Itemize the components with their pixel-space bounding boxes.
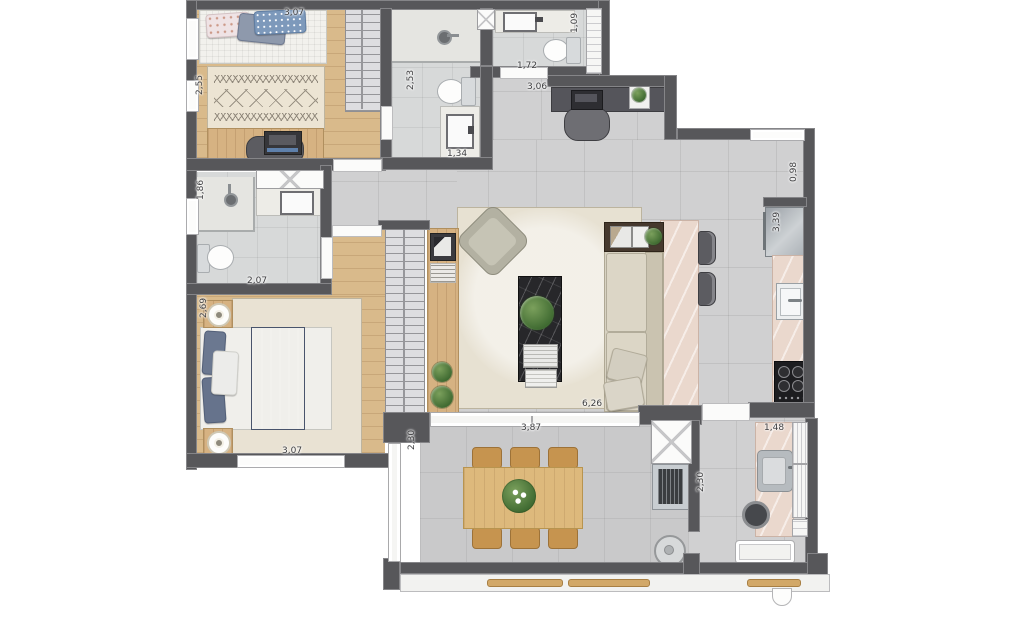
faucet-bathroom-1 (468, 126, 474, 134)
window-bathroom-2 (186, 198, 199, 235)
laptop-1-accent (267, 148, 298, 152)
dimension-label: 2,53 (406, 70, 416, 90)
cabinet-bathroom-2 (256, 170, 324, 189)
floor-plan: 3,072,552,531,341,091,723,060,983,391,86… (0, 0, 1024, 640)
shower-arm-1 (447, 34, 459, 37)
dimension-label: 1,34 (447, 149, 467, 159)
glass-wall-terrace-left (388, 443, 401, 562)
window-kitchen-top (750, 129, 805, 141)
dimension-label: 2,55 (195, 75, 205, 95)
dining-chair-3 (548, 447, 578, 469)
dimension-label: 0,98 (789, 162, 799, 182)
laundry-appliance (735, 540, 795, 564)
laptop-1-screen (269, 135, 296, 145)
coffee-table-plant (520, 296, 554, 330)
dining-chair-2 (510, 447, 540, 469)
wall-bathroom-1-right (480, 66, 493, 170)
coffee-table-book-2 (525, 369, 557, 388)
console-frame-art-inner (434, 237, 451, 256)
sofa-console-frame-1 (610, 226, 632, 248)
dimension-label: 2,07 (247, 276, 267, 286)
ac-condenser (652, 464, 690, 510)
railing-handle-wood-3 (747, 579, 801, 587)
door-master-suite (332, 225, 382, 237)
laptop-bedroom-1 (264, 131, 302, 155)
toilet-1-tank (461, 77, 476, 106)
dimension-label: 6,26 (582, 399, 602, 409)
dining-chair-1 (472, 447, 502, 469)
cabinet-lavabo-right (586, 8, 602, 74)
ac-condenser-slats (658, 469, 683, 504)
stool-2 (698, 272, 716, 306)
dining-chair-6 (548, 527, 578, 549)
wall-right (803, 128, 815, 418)
dimension-label: 1,09 (570, 13, 580, 33)
sofa-back (645, 252, 663, 410)
pillar-terrace-mid (683, 553, 700, 575)
laundry-cabinet-3 (792, 519, 808, 537)
laundry-tank-basin (762, 457, 786, 485)
stove-knobs (777, 396, 803, 400)
refrigerator-handle (763, 212, 766, 250)
window-master-bottom (237, 455, 345, 468)
dining-chair-5 (510, 527, 540, 549)
wall-bathroom-1-bottom (382, 157, 493, 170)
rug-bedroom-1 (207, 66, 325, 130)
wall-closet-stub (378, 220, 430, 230)
wardrobe-master-divider (403, 226, 405, 412)
railing-door-handle (772, 588, 792, 606)
shower-2-glass-line-v (253, 177, 255, 232)
rug-1-chevron-band-top (214, 75, 318, 83)
door-bathroom-1 (381, 106, 393, 140)
dimension-label: 1,48 (764, 423, 784, 433)
desk-plant (632, 88, 646, 102)
shower-head-1 (437, 30, 452, 45)
sofa-console-plant (645, 228, 662, 245)
shower-1-glass-line (392, 61, 480, 63)
wall-step-vertical (664, 75, 677, 140)
wall-top (186, 0, 610, 10)
railing-handle-wood-1 (487, 579, 563, 587)
laundry-cabinet-1 (792, 422, 808, 464)
dimension-label: 2,69 (199, 298, 209, 318)
wall-fridge-nook-stub (763, 197, 807, 207)
lamp-top-dot (214, 310, 224, 320)
sofa-seat-1 (606, 253, 647, 332)
faucet-lavabo (535, 17, 543, 22)
coffee-table-book-1 (523, 344, 558, 368)
dining-chair-4 (472, 527, 502, 549)
dimension-label: 1,86 (196, 180, 206, 200)
lamp-bottom (207, 431, 231, 455)
dimension-label: 2,30 (696, 472, 706, 492)
wall-terrace-bottom (400, 562, 828, 574)
laptop-office (571, 90, 603, 110)
dimension-label: 3,39 (772, 212, 782, 232)
console-frame-art (430, 233, 456, 261)
blanket-master (251, 327, 305, 430)
stool-1 (698, 231, 716, 265)
dimension-label: 3,07 (284, 8, 304, 18)
dimension-label: 3,87 (521, 423, 541, 433)
toilet-2-tank (566, 37, 581, 64)
wall-office-top (547, 75, 677, 87)
water-heater-core (664, 545, 674, 555)
toilet-3-bowl (207, 245, 234, 270)
laundry-tank (757, 450, 793, 492)
console-plant-1 (432, 362, 452, 382)
sink-bathroom-2 (280, 191, 314, 215)
laundry-cabinet-2 (792, 464, 808, 518)
laptop-office-screen (575, 94, 597, 102)
shower-head-2 (224, 193, 238, 207)
burner-3 (778, 380, 790, 392)
desk-chair-office (564, 107, 610, 141)
kitchen-sink-basin (780, 288, 801, 316)
burner-1 (778, 366, 790, 378)
kitchen-island (660, 220, 699, 414)
shower-2-glass-line-h (197, 230, 255, 232)
wall-terrace-corner-bottom (383, 558, 400, 590)
wardrobe-master (385, 225, 425, 415)
rug-1-diamond-band (214, 89, 318, 107)
dimension-label: 2,30 (407, 430, 417, 450)
wardrobe-bedroom-1 (345, 7, 382, 112)
floor-shower-1 (392, 8, 480, 62)
railing-handle-wood-2 (568, 579, 650, 587)
washer-door (742, 501, 770, 529)
pillar-terrace-right (807, 553, 828, 575)
rug-1-chevron-band-bottom (214, 113, 318, 121)
dimension-label: 3,07 (282, 446, 302, 456)
sink-lavabo (503, 12, 537, 32)
wall-left (186, 0, 197, 470)
kitchen-faucet (788, 299, 802, 302)
door-laundry (702, 403, 750, 421)
console-frame-print (430, 263, 456, 283)
dimension-label: 3,06 (527, 82, 547, 92)
console-plant-2 (431, 386, 453, 408)
dimension-label: 1,72 (517, 61, 537, 71)
door-bathroom-2 (321, 237, 333, 279)
pillow-master-white (211, 350, 239, 395)
shower-arm-2 (228, 184, 231, 194)
lamp-top (207, 303, 231, 327)
window-bedroom-1-a (186, 18, 199, 60)
floor-corridor (330, 228, 387, 295)
shaft-box-top (477, 9, 495, 30)
lamp-bottom-dot (214, 438, 224, 448)
wardrobe-1-divider (361, 8, 363, 109)
armchair-cushion (466, 216, 518, 268)
wall-laundry-top-right (748, 402, 815, 418)
shaft-duct (651, 420, 692, 464)
door-bedroom-1 (333, 159, 382, 172)
centerpiece-flowers (510, 487, 528, 505)
